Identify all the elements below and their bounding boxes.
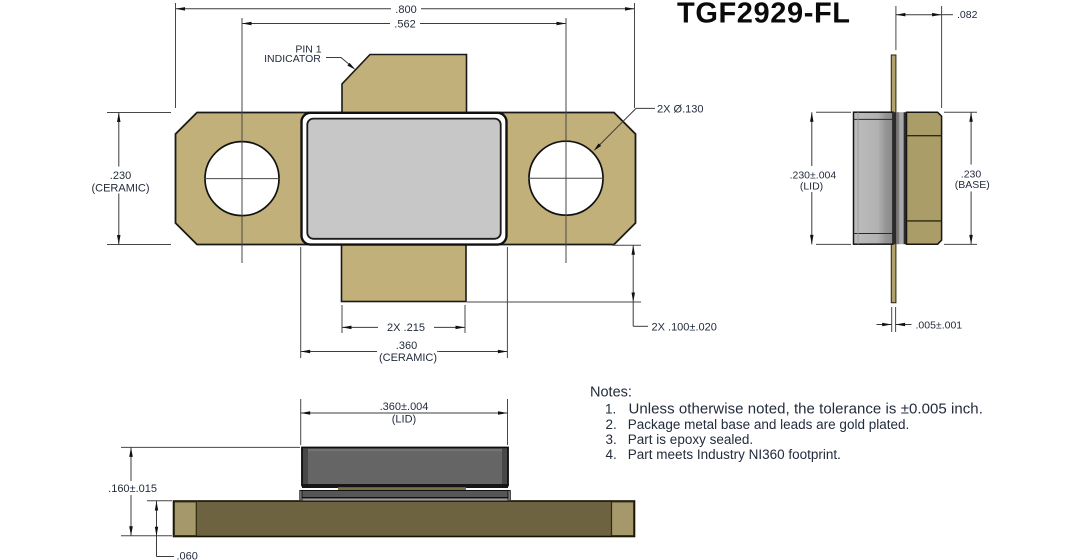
svg-text:.160±.015: .160±.015 (108, 483, 157, 495)
svg-text:.082: .082 (957, 9, 978, 21)
svg-text:2.: 2. (606, 417, 617, 432)
svg-text:Part is epoxy sealed.: Part is epoxy sealed. (628, 432, 753, 447)
svg-text:.005±.001: .005±.001 (916, 319, 963, 331)
svg-text:.562: .562 (394, 19, 415, 31)
svg-text:Notes:: Notes: (590, 385, 632, 401)
svg-text:(LID): (LID) (392, 414, 416, 426)
svg-text:.060: .060 (177, 551, 198, 560)
svg-text:(LID): (LID) (800, 180, 823, 192)
svg-text:2X .100±.020: 2X .100±.020 (652, 321, 717, 333)
svg-text:Package metal base and leads a: Package metal base and leads are gold pl… (628, 417, 909, 432)
svg-text:2X Ø.130: 2X Ø.130 (657, 103, 703, 115)
svg-text:(CERAMIC): (CERAMIC) (379, 352, 437, 364)
svg-text:3.: 3. (606, 432, 617, 447)
svg-text:Unless otherwise noted, the to: Unless otherwise noted, the tolerance is… (629, 401, 983, 418)
svg-text:TGF2929-FL: TGF2929-FL (677, 0, 851, 30)
svg-text:Part meets Industry NI360 foot: Part meets Industry NI360 footprint. (628, 447, 841, 462)
svg-text:.360±.004: .360±.004 (380, 401, 429, 413)
svg-text:4.: 4. (606, 447, 617, 462)
svg-text:1.: 1. (605, 402, 616, 417)
svg-text:.360: .360 (396, 340, 417, 352)
svg-text:INDICATOR: INDICATOR (264, 53, 321, 65)
svg-text:(CERAMIC): (CERAMIC) (91, 182, 149, 194)
svg-text:.230: .230 (110, 170, 131, 182)
svg-text:2X .215: 2X .215 (387, 322, 425, 334)
svg-text:.800: .800 (395, 4, 416, 16)
svg-text:(BASE): (BASE) (955, 179, 990, 191)
